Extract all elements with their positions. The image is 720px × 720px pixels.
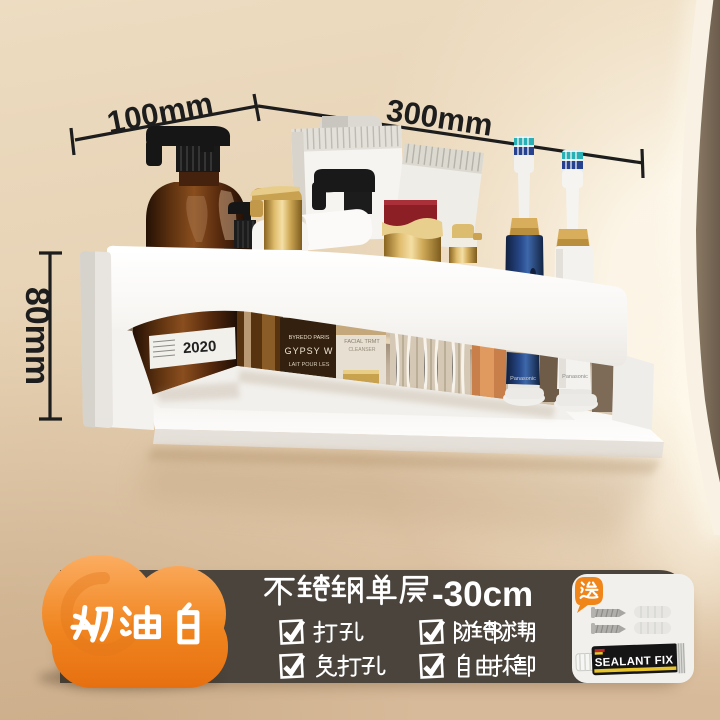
svg-text:LAIT POUR LES: LAIT POUR LES [289, 362, 330, 368]
svg-text:FACIAL TRMT: FACIAL TRMT [344, 339, 380, 345]
svg-text:GYPSY W: GYPSY W [285, 346, 334, 356]
svg-text:2020: 2020 [182, 338, 216, 357]
svg-text:CLEANSER: CLEANSER [349, 347, 376, 353]
svg-text:Panasonic: Panasonic [562, 374, 588, 380]
svg-text:-30cm: -30cm [432, 575, 533, 614]
svg-text:80mm: 80mm [18, 287, 56, 385]
svg-text:Panasonic: Panasonic [510, 376, 536, 382]
svg-text:BYREDO PARIS: BYREDO PARIS [289, 335, 330, 341]
